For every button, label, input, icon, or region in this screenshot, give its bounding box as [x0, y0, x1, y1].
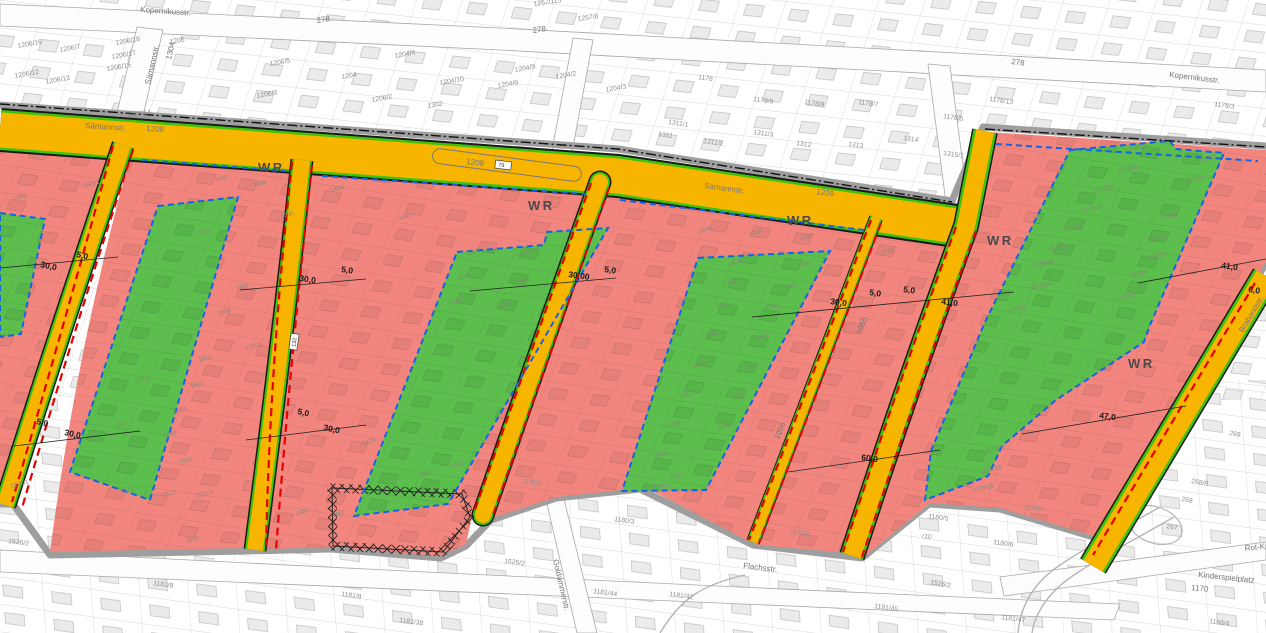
wr-zone-label: WR	[528, 198, 555, 213]
map-canvas[interactable]: 1206/161206/71206/1812061206/171206/1512…	[0, 0, 1266, 633]
svg-text:132: 132	[291, 337, 298, 347]
street-label: 278	[1011, 57, 1026, 68]
parcel-number: /10	[922, 533, 933, 541]
wr-zone-label: WR	[258, 160, 285, 175]
street-label: 278	[316, 14, 331, 25]
street-label: 278	[532, 24, 547, 35]
survey-marker-box: 79	[495, 160, 512, 170]
street-label: 1170	[1191, 583, 1210, 594]
dimension-label: 5,0	[341, 264, 354, 276]
dimension-label: 6,0	[1248, 284, 1261, 296]
wr-zone-label: WR	[787, 213, 814, 228]
survey-marker-box: 132	[289, 333, 299, 350]
dimension-label: 5,0	[604, 264, 617, 276]
wr-zone-label: WR	[987, 233, 1014, 248]
wr-zone-label: WR	[1128, 356, 1155, 371]
street-label: 1208	[146, 124, 165, 134]
dimension-label: 5,0	[903, 284, 916, 296]
dimension-label: 5,0	[869, 287, 882, 299]
svg-text:79: 79	[498, 162, 505, 169]
zoning-map[interactable]: 1206/161206/71206/1812061206/171206/1512…	[0, 0, 1266, 633]
